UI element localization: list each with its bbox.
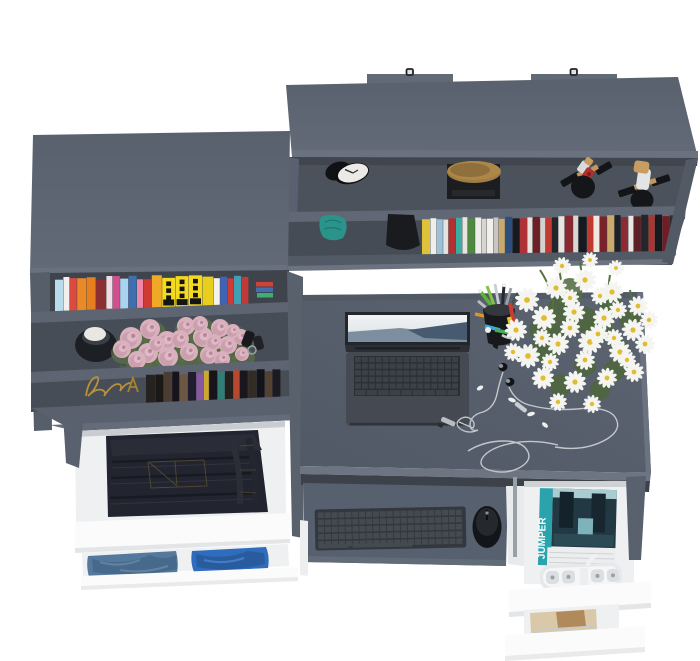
svg-text:JUMPER: JUMPER xyxy=(537,517,549,560)
